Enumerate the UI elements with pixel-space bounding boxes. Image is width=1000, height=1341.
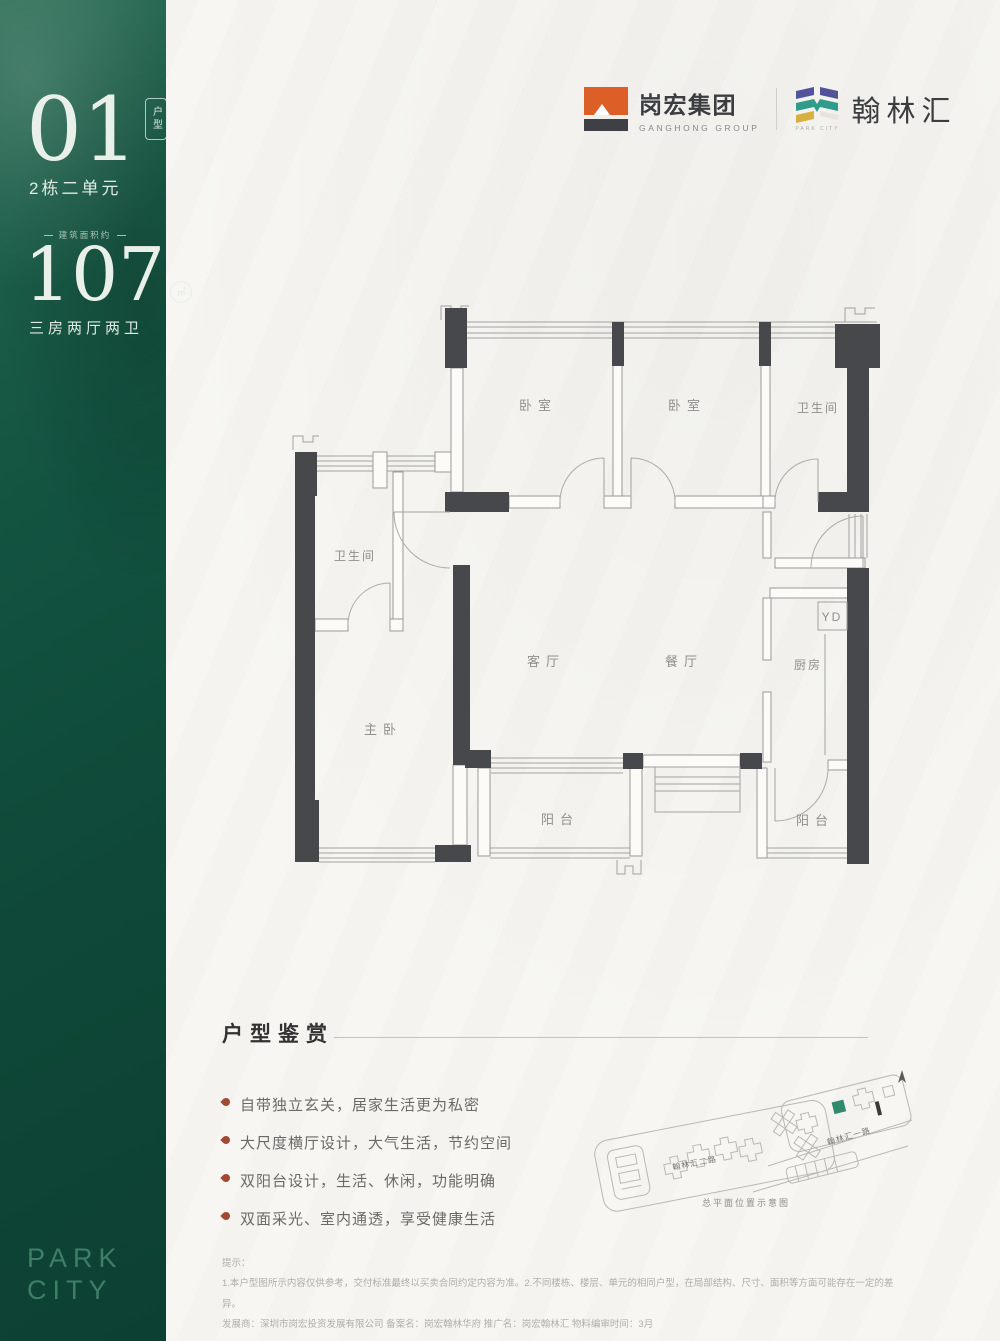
room-layout-label: 三房两厅两卫 xyxy=(29,317,143,338)
feature-item: 双阳台设计，生活、休闲，功能明确 xyxy=(222,1170,512,1191)
room-label-living: 客厅 xyxy=(527,654,565,669)
unit-number: 01 xyxy=(26,86,138,174)
ganghong-name-cn: 岗宏集团 xyxy=(639,86,759,120)
current-building-highlight xyxy=(832,1100,847,1115)
area-unit-badge: ㎡ xyxy=(170,281,192,303)
disclaimer: 提示： 1.本户型图所示内容仅供参考，交付标准最终以买卖合同约定内容为准。2.不… xyxy=(222,1254,912,1336)
logo-divider xyxy=(776,88,777,130)
hanlinhui-icon-wrap: PARK CITY xyxy=(794,86,840,132)
room-label-bath-left: 卫生间 xyxy=(334,549,376,563)
hanlinhui-name-en: PARK CITY xyxy=(795,126,839,132)
hanlinhui-logo-icon xyxy=(794,86,840,124)
leaf-bullet-icon xyxy=(220,1172,231,1183)
feature-list: 自带独立玄关，居家生活更为私密 大尺度横厅设计，大气生活，节约空间 双阳台设计，… xyxy=(222,1094,512,1246)
road-label-phase1: 翰林汇一路 xyxy=(826,1125,872,1147)
fixtures xyxy=(655,602,847,812)
structural-walls xyxy=(295,308,880,864)
feature-text: 自带独立玄关，居家生活更为私密 xyxy=(240,1094,480,1115)
room-label-kitchen: 厨房 xyxy=(794,657,822,672)
room-label-bath-top: 卫生间 xyxy=(797,401,839,415)
ganghong-logo-text: 岗宏集团 GANGHONG GROUP xyxy=(639,86,759,133)
room-label-balcony-right: 阳台 xyxy=(796,813,834,828)
unit-type-badge: 户型 xyxy=(145,98,167,140)
room-label-bedroom2: 卧室 xyxy=(668,398,706,413)
heading-rule xyxy=(334,1037,868,1038)
park-city-wordmark: PARK CITY xyxy=(27,1243,123,1307)
section-heading: 户型鉴赏 xyxy=(222,1018,334,1048)
siteplan-svg: 翰林汇二路 翰林汇一路 总平面位置示意图 xyxy=(578,1066,920,1218)
feature-text: 大尺度横厅设计，大气生活，节约空间 xyxy=(240,1132,512,1153)
room-label-duct: YD xyxy=(822,610,843,624)
brand-line-2: CITY xyxy=(27,1275,123,1307)
feature-text: 双阳台设计，生活、休闲，功能明确 xyxy=(240,1170,496,1191)
leaf-bullet-icon xyxy=(220,1096,231,1107)
room-label-master: 主卧 xyxy=(364,722,402,737)
leaf-bullet-icon xyxy=(220,1134,231,1145)
ganghong-logo-icon xyxy=(583,86,629,132)
floorplan-drawing: 卧室 卧室 卫生间 卫生间 主卧 客厅 餐厅 厨房 YD 阳台 阳台 xyxy=(285,300,885,890)
sidebar: 01 户型 2栋二单元 建筑面积约 107 ㎡ 三房两厅两卫 PARK CITY xyxy=(0,0,166,1341)
feature-item: 双面采光、室内通透，享受健康生活 xyxy=(222,1208,512,1229)
floorplan-poster: 01 户型 2栋二单元 建筑面积约 107 ㎡ 三房两厅两卫 PARK CITY… xyxy=(0,0,1000,1341)
room-label-balcony-left: 阳台 xyxy=(541,812,579,827)
siteplan-caption: 总平面位置示意图 xyxy=(702,1197,790,1208)
disclaimer-title: 提示： xyxy=(222,1254,912,1274)
feature-item: 自带独立玄关，居家生活更为私密 xyxy=(222,1094,512,1115)
header-logos: 岗宏集团 GANGHONG GROUP PARK CITY 翰林汇 xyxy=(583,86,956,133)
room-label-dining: 餐厅 xyxy=(665,654,703,669)
feature-text: 双面采光、室内通透，享受健康生活 xyxy=(240,1208,496,1229)
floorplan-svg: 卧室 卧室 卫生间 卫生间 主卧 客厅 餐厅 厨房 YD 阳台 阳台 xyxy=(285,300,885,890)
hanlinhui-name-cn: 翰林汇 xyxy=(851,88,956,130)
ganghong-name-en: GANGHONG GROUP xyxy=(639,123,759,133)
hanlinhui-logo: PARK CITY 翰林汇 xyxy=(794,86,956,132)
road-label-phase2: 翰林汇二路 xyxy=(671,1154,717,1172)
unit-number-row: 01 户型 xyxy=(26,86,167,174)
room-label-bedroom1: 卧室 xyxy=(519,398,557,413)
brand-line-1: PARK xyxy=(27,1243,123,1275)
leaf-bullet-icon xyxy=(220,1210,231,1221)
building-unit-label: 2栋二单元 xyxy=(29,174,121,199)
area-value: 107 xyxy=(24,238,165,312)
siteplan-map: 翰林汇二路 翰林汇一路 总平面位置示意图 xyxy=(578,1066,920,1218)
disclaimer-line-2: 发展商：深圳市岗宏投资发展有限公司 备案名：岗宏翰林华府 推广名：岗宏翰林汇 物… xyxy=(222,1315,912,1335)
disclaimer-line-1: 1.本户型图所示内容仅供参考，交付标准最终以买卖合同约定内容为准。2.不同楼栋、… xyxy=(222,1274,912,1315)
partition-walls xyxy=(315,364,865,858)
door-swings xyxy=(348,458,863,821)
feature-item: 大尺度横厅设计，大气生活，节约空间 xyxy=(222,1132,512,1153)
area-row: 107 ㎡ xyxy=(24,238,192,312)
siteplan-roads xyxy=(753,1120,912,1192)
